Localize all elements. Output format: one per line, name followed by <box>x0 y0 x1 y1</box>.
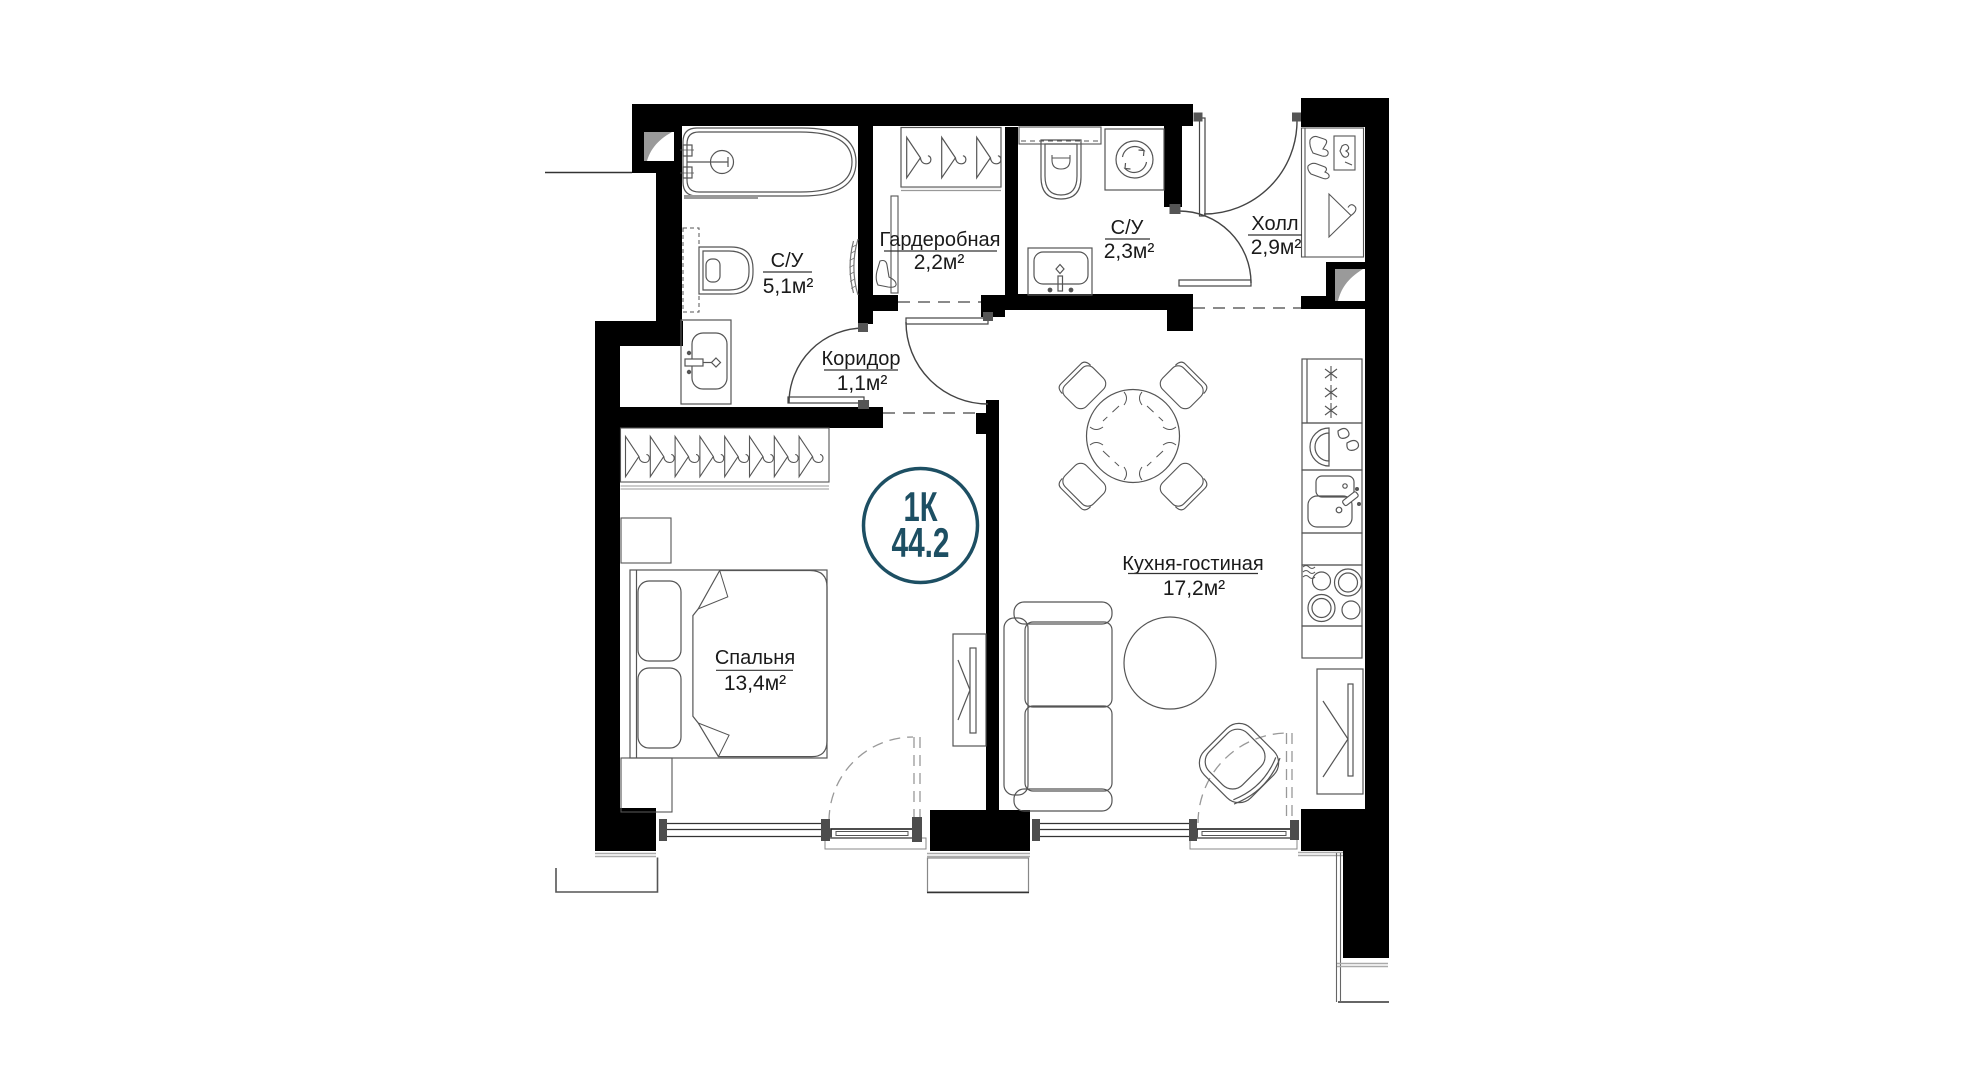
svg-text:13,4м²: 13,4м² <box>724 672 786 695</box>
svg-text:Кухня-гостиная: Кухня-гостиная <box>1122 553 1264 575</box>
svg-text:5,1м²: 5,1м² <box>763 275 814 298</box>
svg-text:17,2м²: 17,2м² <box>1163 577 1225 600</box>
svg-text:2,9м²: 2,9м² <box>1251 236 1302 259</box>
svg-text:Спальня: Спальня <box>715 647 795 669</box>
svg-text:С/У: С/У <box>771 250 804 272</box>
svg-text:2,2м²: 2,2м² <box>914 251 965 274</box>
svg-text:Холл: Холл <box>1251 213 1298 235</box>
svg-text:Гардеробная: Гардеробная <box>880 229 1001 251</box>
svg-text:2,3м²: 2,3м² <box>1104 240 1155 263</box>
svg-text:С/У: С/У <box>1111 217 1144 239</box>
svg-text:Коридор: Коридор <box>822 348 901 370</box>
svg-text:1,1м²: 1,1м² <box>837 372 888 395</box>
svg-text:44.2: 44.2 <box>892 519 950 566</box>
